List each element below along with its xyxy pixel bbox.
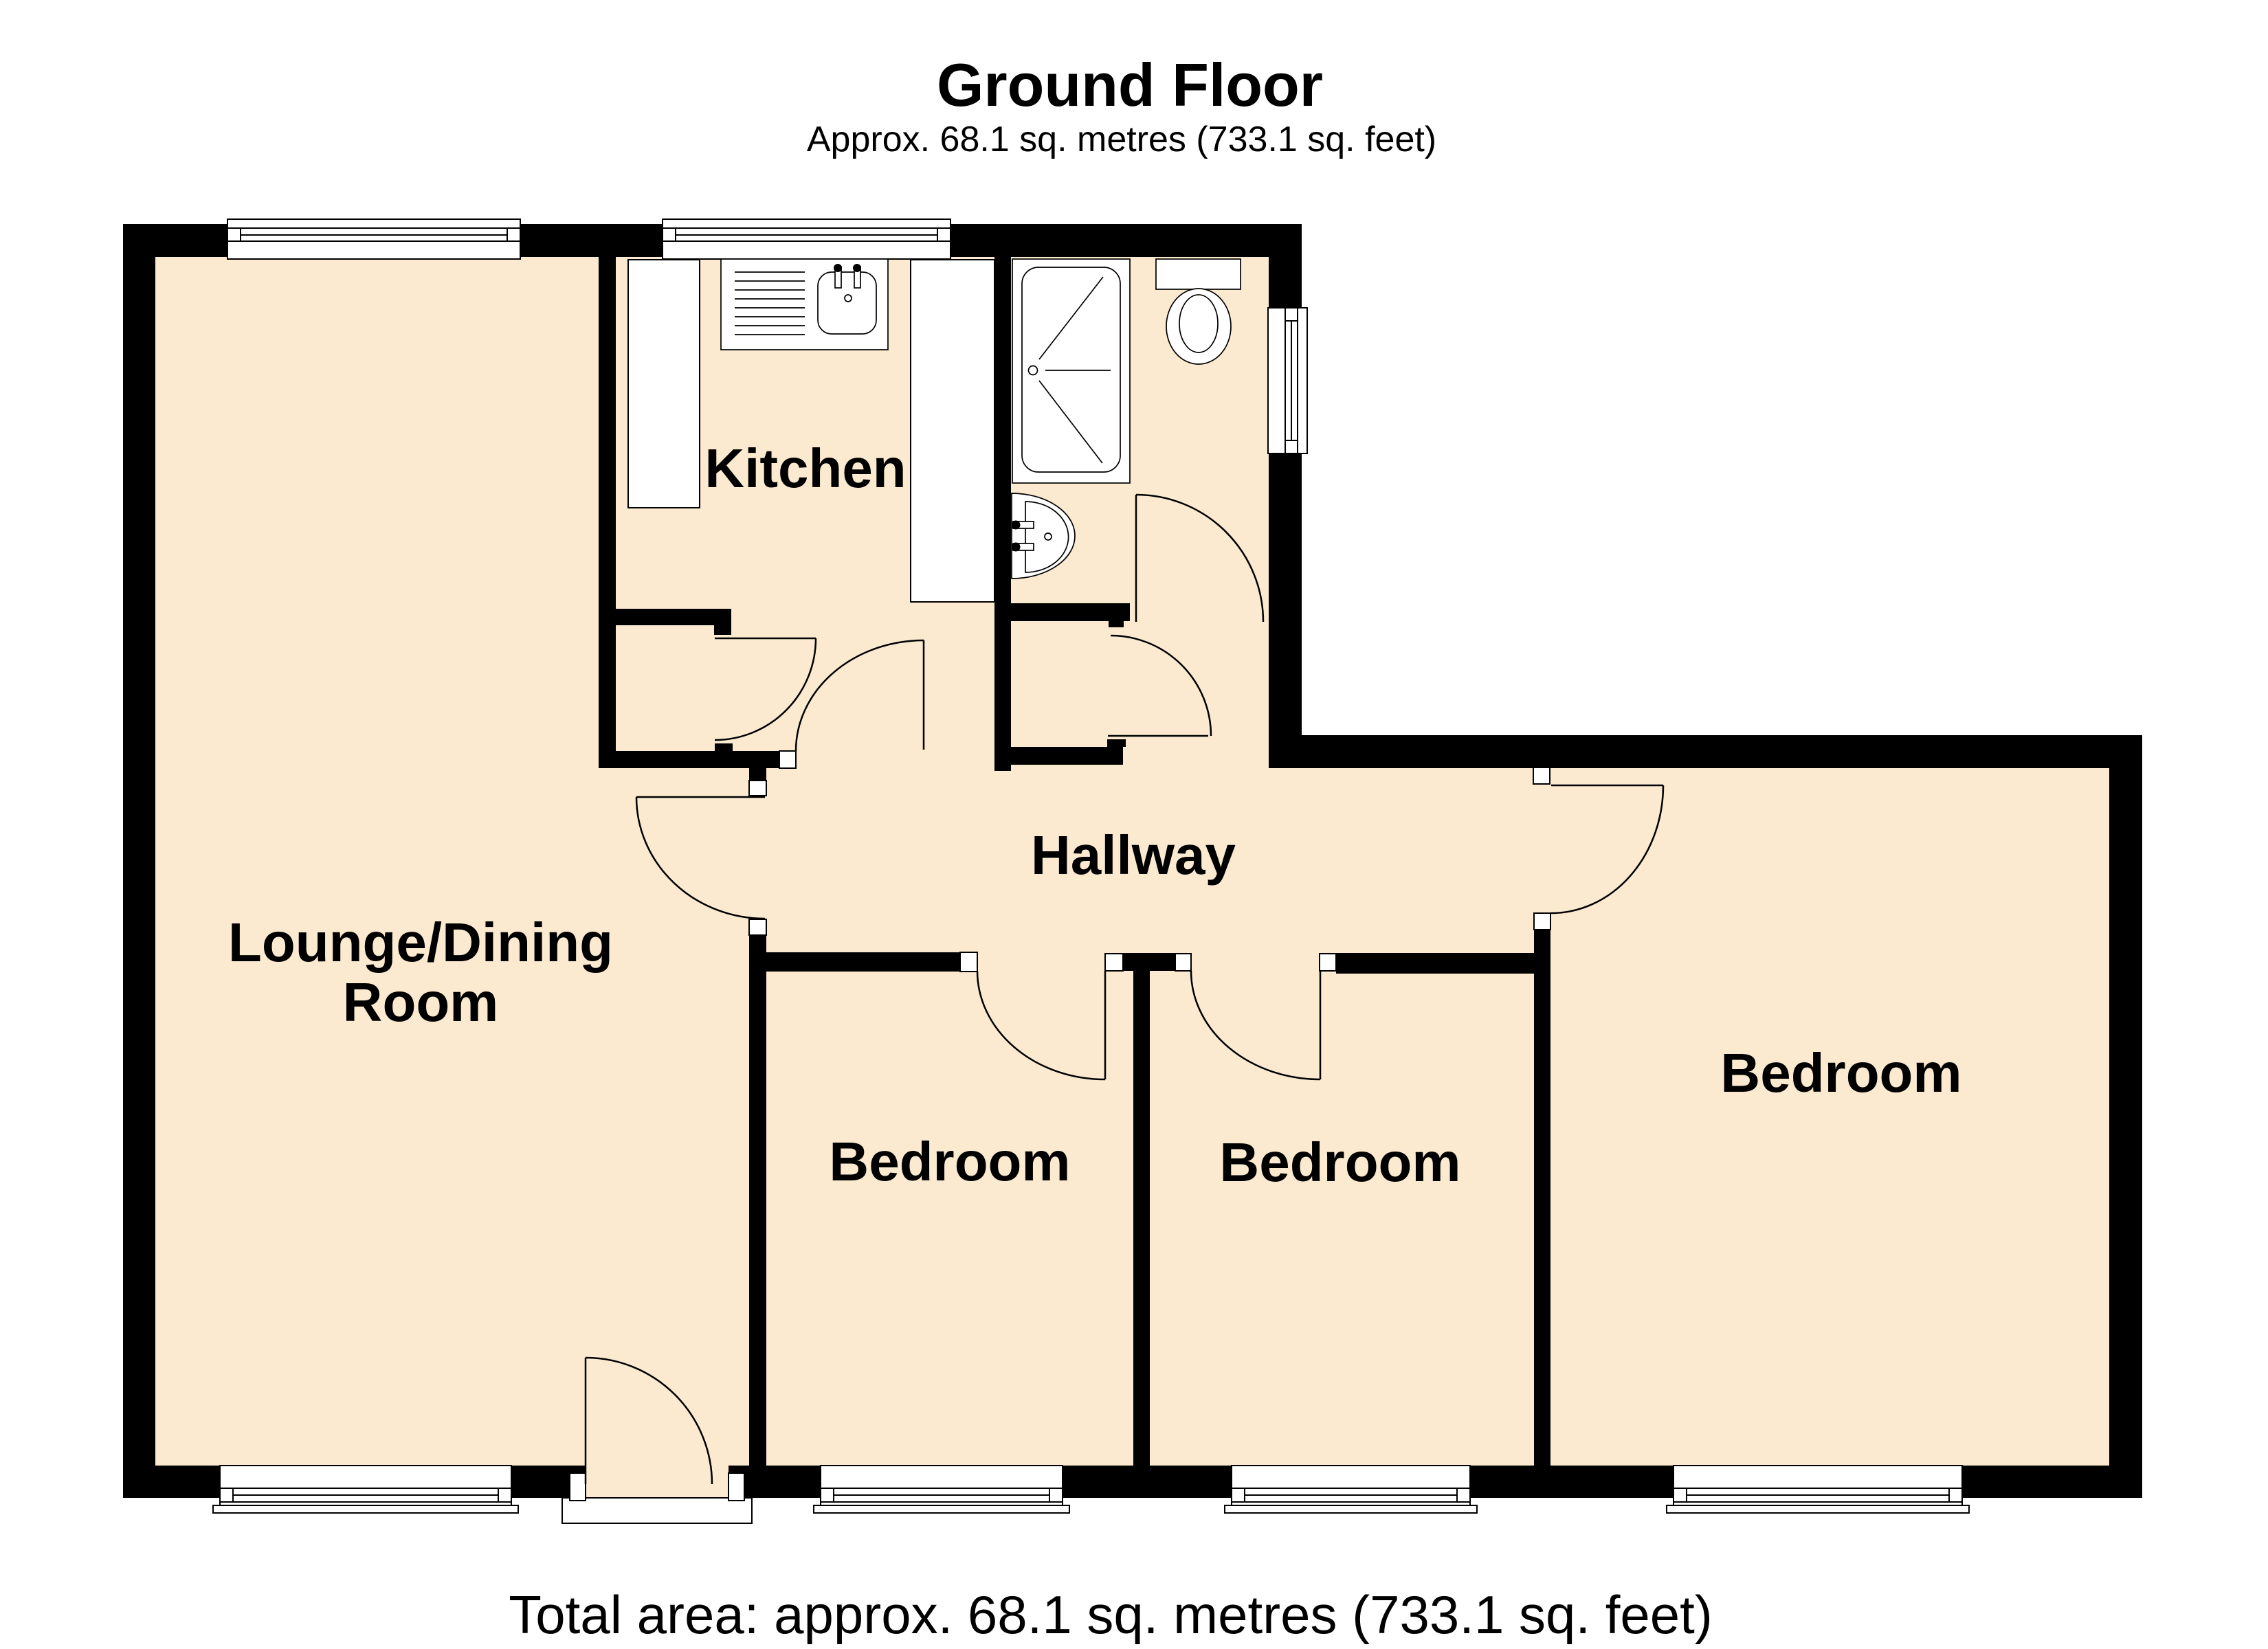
svg-text:Bedroom: Bedroom — [829, 1131, 1070, 1192]
svg-text:Approx. 68.1 sq. metres (733.1: Approx. 68.1 sq. metres (733.1 sq. feet) — [807, 120, 1436, 159]
svg-text:Ground Floor: Ground Floor — [937, 51, 1323, 119]
svg-text:Total area: approx. 68.1 sq. m: Total area: approx. 68.1 sq. metres (733… — [509, 1584, 1713, 1645]
svg-text:Bedroom: Bedroom — [1219, 1132, 1460, 1193]
svg-text:Kitchen: Kitchen — [704, 438, 906, 499]
svg-text:Lounge/Dining: Lounge/Dining — [228, 912, 613, 973]
svg-text:Hallway: Hallway — [1031, 824, 1236, 886]
svg-text:Room: Room — [343, 972, 499, 1033]
svg-text:Bedroom: Bedroom — [1720, 1042, 1961, 1103]
